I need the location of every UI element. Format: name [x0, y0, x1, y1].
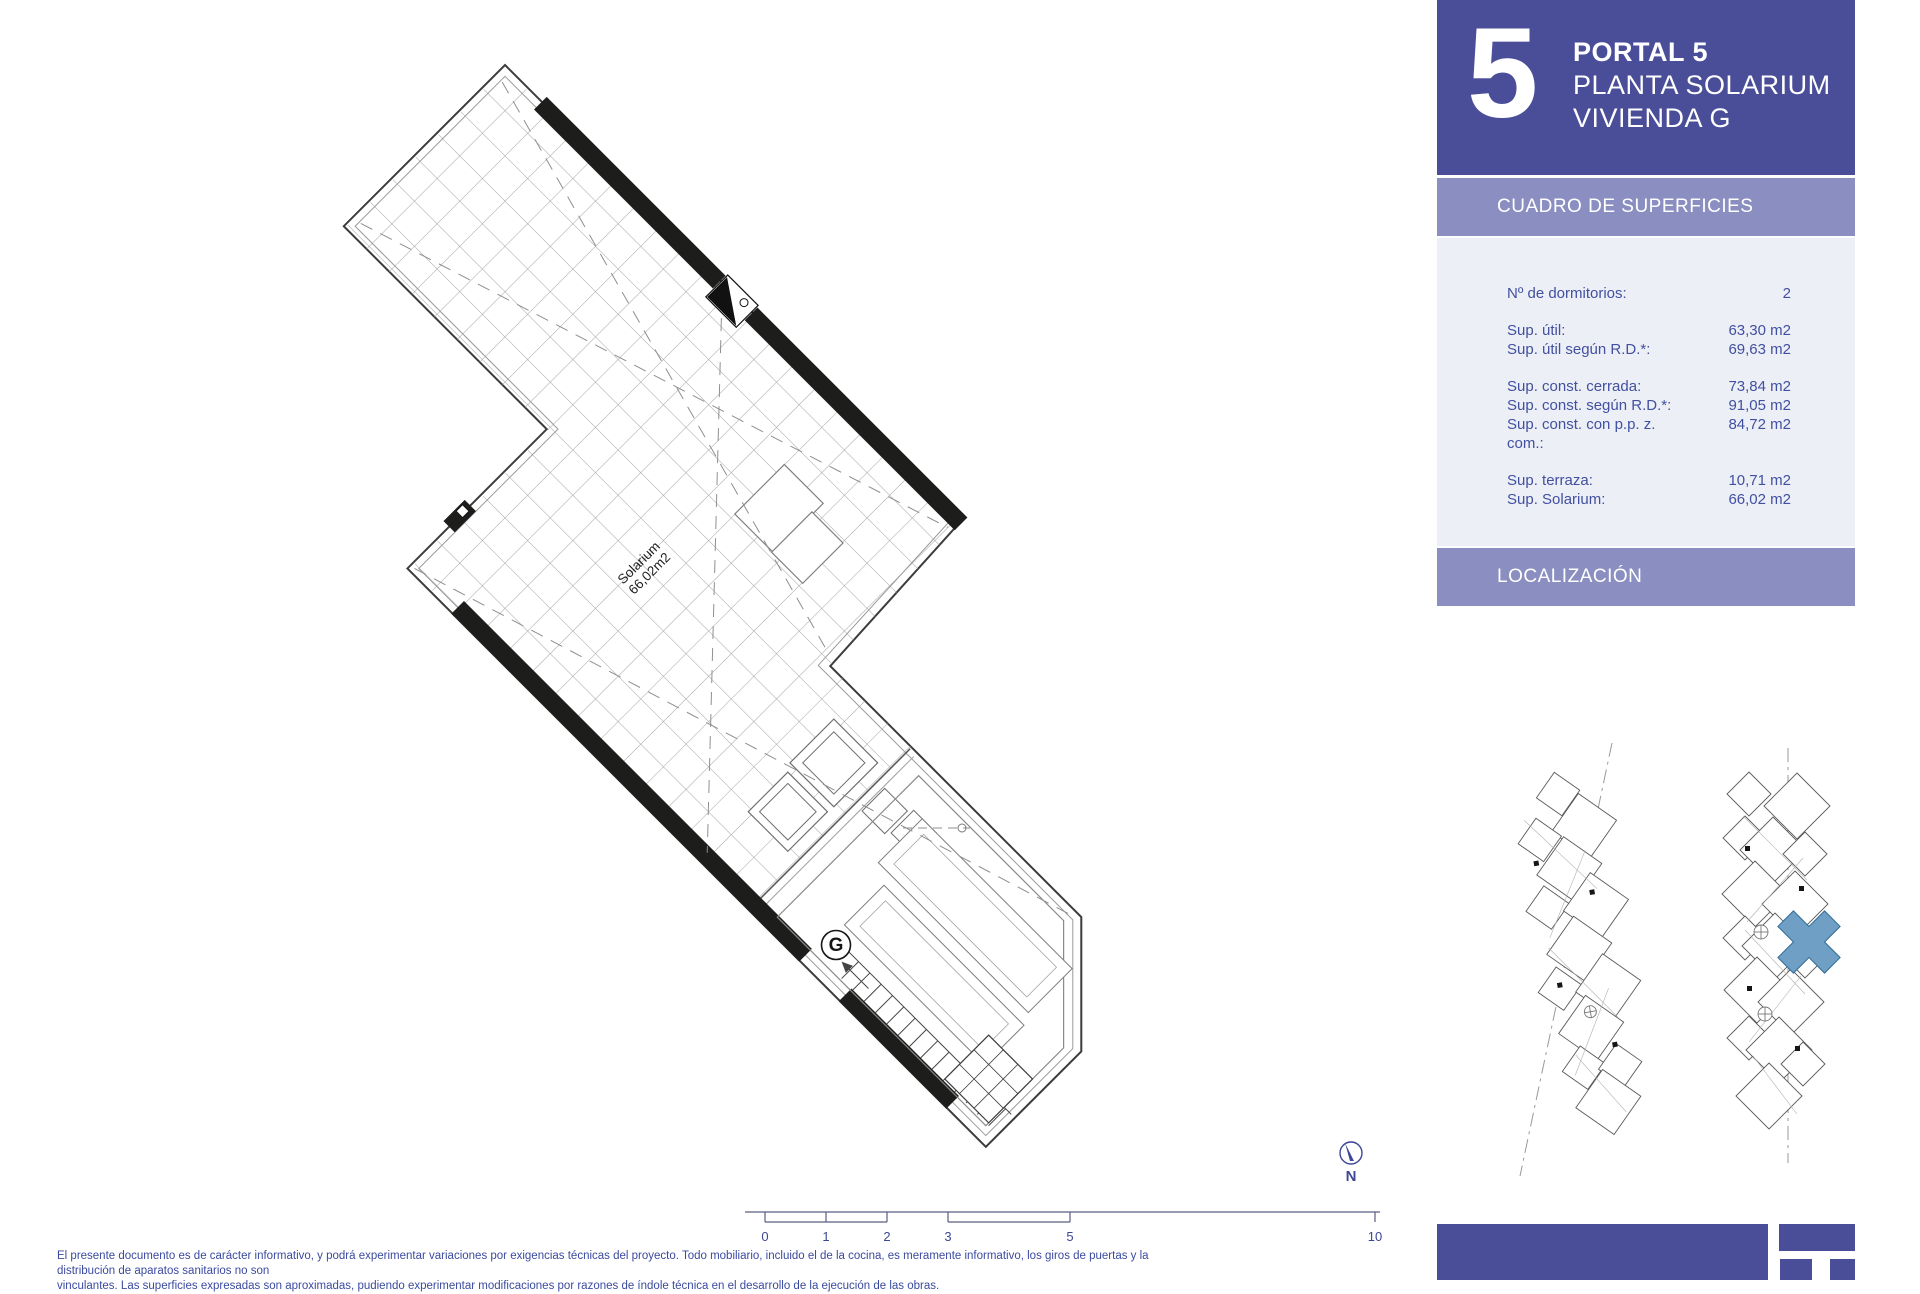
- row-label: Sup. útil:: [1507, 321, 1691, 340]
- title-planta: PLANTA SOLARIUM: [1573, 69, 1831, 102]
- table-row: Sup. terraza: 10,71 m2: [1507, 471, 1791, 490]
- scale-tick-0: 0: [761, 1229, 768, 1244]
- row-value: 2: [1691, 284, 1791, 303]
- surfaces-table: Nº de dormitorios: 2 Sup. útil: 63,30 m2…: [1437, 238, 1855, 546]
- solarium-plan-rotated-group: [201, 59, 1296, 1154]
- floor-plan-drawing: G Solarium 66,02m2 N: [0, 0, 1437, 1280]
- sheet-title: PORTAL 5 PLANTA SOLARIUM VIVIENDA G: [1573, 36, 1831, 135]
- brand-logo-block-left: [1780, 1259, 1812, 1280]
- surfaces-band: CUADRO DE SUPERFICIES: [1437, 178, 1855, 236]
- site-plan-minimaps: [1437, 606, 1855, 1222]
- localization-maps: [1437, 606, 1855, 1222]
- brand-logo-block-right: [1830, 1259, 1855, 1280]
- floor-plan-sheet: G Solarium 66,02m2 N: [0, 0, 1437, 1280]
- row-value: 10,71 m2: [1691, 471, 1791, 490]
- table-row: Sup. const. según R.D.*: 91,05 m2: [1507, 396, 1791, 415]
- row-value: 73,84 m2: [1691, 377, 1791, 396]
- table-row: Nº de dormitorios: 2: [1507, 284, 1791, 303]
- brand-logo-block-top: [1779, 1224, 1855, 1251]
- scale-tick-2: 2: [883, 1229, 890, 1244]
- surfaces-title: CUADRO DE SUPERFICIES: [1497, 196, 1753, 218]
- disclaimer-line-1: El presente documento es de carácter inf…: [57, 1249, 1157, 1279]
- unit-letter-badge: G: [822, 931, 851, 960]
- north-label: N: [1346, 1168, 1357, 1185]
- row-value: 69,63 m2: [1691, 340, 1791, 359]
- row-label: Sup. Solarium:: [1507, 490, 1691, 509]
- portal-number: 5: [1467, 0, 1538, 161]
- sidebar-footer: [1437, 1224, 1855, 1280]
- disclaimer-text: El presente documento es de carácter inf…: [57, 1249, 1157, 1294]
- row-label: Sup. const. cerrada:: [1507, 377, 1691, 396]
- localization-band: LOCALIZACIÓN: [1437, 548, 1855, 606]
- floor-tile-grid: [201, 65, 1290, 1154]
- building-block-left: [1501, 763, 1670, 1143]
- sheet-header: 5 PORTAL 5 PLANTA SOLARIUM VIVIENDA G: [1437, 0, 1855, 175]
- localization-title: LOCALIZACIÓN: [1497, 566, 1642, 588]
- row-label: Sup. útil según R.D.*:: [1507, 340, 1691, 359]
- row-value: 84,72 m2: [1691, 415, 1791, 453]
- scale-bar: 0 1 2 3 5 10: [745, 1212, 1382, 1244]
- row-value: 63,30 m2: [1691, 321, 1791, 340]
- footer-bar: [1437, 1224, 1768, 1280]
- row-value: 91,05 m2: [1691, 396, 1791, 415]
- scale-tick-5: 5: [1066, 1229, 1073, 1244]
- row-label: Sup. terraza:: [1507, 471, 1691, 490]
- table-row: Sup. útil: 63,30 m2: [1507, 321, 1791, 340]
- row-value: 66,02 m2: [1691, 490, 1791, 509]
- info-sidebar: 5 PORTAL 5 PLANTA SOLARIUM VIVIENDA G CU…: [1437, 0, 1855, 1280]
- table-row: Sup. útil según R.D.*: 69,63 m2: [1507, 340, 1791, 359]
- row-label: Sup. const. con p.p. z. com.:: [1507, 415, 1691, 453]
- row-label: Sup. const. según R.D.*:: [1507, 396, 1691, 415]
- scale-tick-10: 10: [1368, 1229, 1382, 1244]
- unit-letter: G: [829, 935, 844, 956]
- row-label: Nº de dormitorios:: [1507, 284, 1691, 303]
- scale-tick-3: 3: [944, 1229, 951, 1244]
- title-vivienda: VIVIENDA G: [1573, 102, 1831, 135]
- table-row: Sup. Solarium: 66,02 m2: [1507, 490, 1791, 509]
- title-portal: PORTAL 5: [1573, 36, 1831, 69]
- table-row: Sup. const. cerrada: 73,84 m2: [1507, 377, 1791, 396]
- north-arrow-icon: N: [1340, 1142, 1362, 1185]
- table-row: Sup. const. con p.p. z. com.: 84,72 m2: [1507, 415, 1791, 453]
- scale-tick-1: 1: [822, 1229, 829, 1244]
- disclaimer-line-2: vinculantes. Las superficies expresadas …: [57, 1279, 1157, 1294]
